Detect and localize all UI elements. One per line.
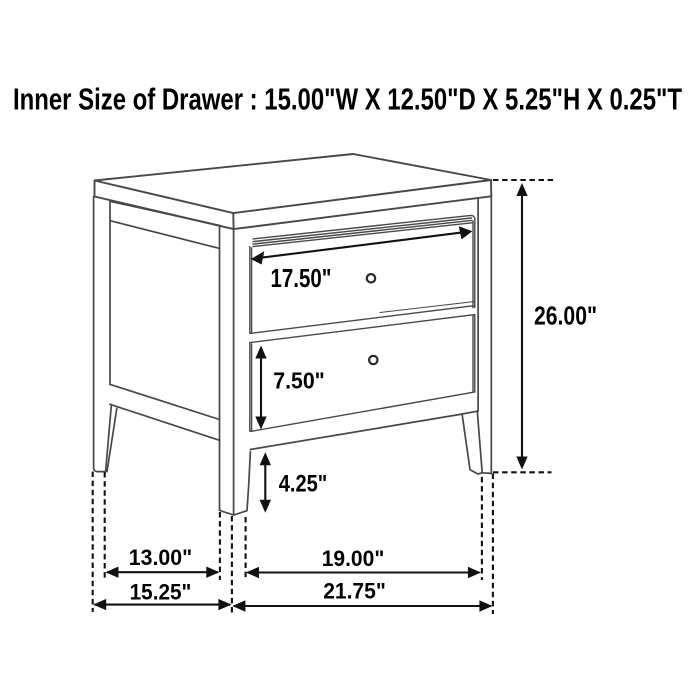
svg-text:17.50": 17.50" — [271, 263, 332, 293]
svg-text:Inner Size of Drawer : 15.00"W: Inner Size of Drawer : 15.00"W X 12.50"D… — [13, 82, 682, 117]
svg-text:4.25": 4.25" — [279, 471, 328, 498]
svg-text:15.25": 15.25" — [130, 579, 192, 604]
svg-text:7.50": 7.50" — [273, 368, 325, 394]
svg-text:21.75": 21.75" — [323, 578, 386, 603]
svg-text:19.00": 19.00" — [322, 546, 385, 571]
svg-text:13.00": 13.00" — [129, 545, 192, 570]
svg-text:26.00": 26.00" — [534, 301, 597, 331]
